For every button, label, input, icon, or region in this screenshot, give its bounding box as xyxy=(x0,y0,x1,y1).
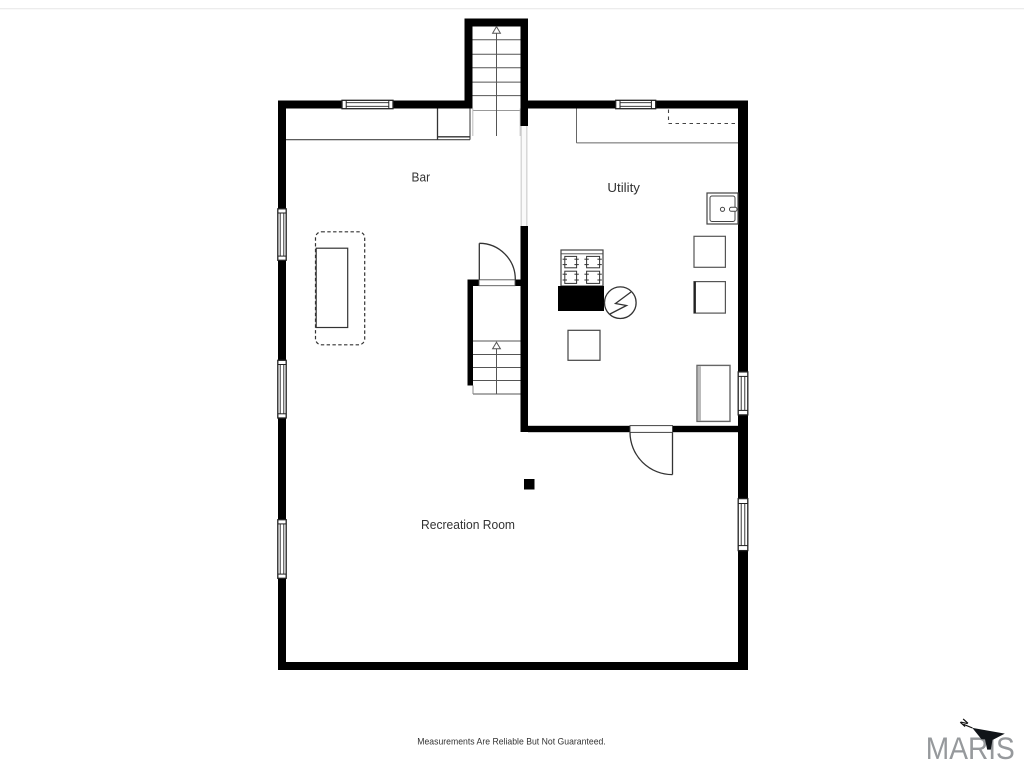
svg-text:N: N xyxy=(958,717,971,730)
svg-text:Measurements Are Reliable But: Measurements Are Reliable But Not Guaran… xyxy=(417,736,606,746)
svg-text:Utility: Utility xyxy=(607,180,640,195)
svg-text:Bar: Bar xyxy=(412,170,431,185)
svg-text:Recreation Room: Recreation Room xyxy=(421,517,515,532)
